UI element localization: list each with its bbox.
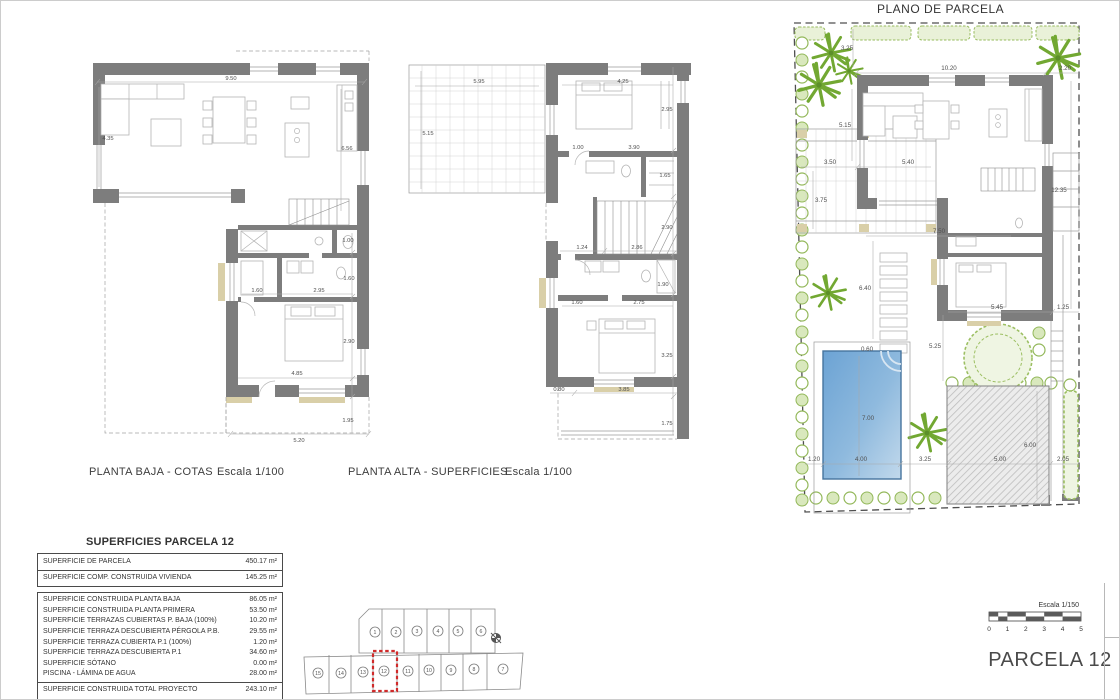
palm-tree xyxy=(812,275,846,309)
dim-parcela: 5.45 xyxy=(991,304,1004,311)
lot-number: 1 xyxy=(374,630,377,636)
dim-parcela: 3.50 xyxy=(824,159,837,166)
planta-baja-scale: Escala 1/100 xyxy=(217,466,284,478)
lot-number: 10 xyxy=(426,668,432,674)
lot-number: 13 xyxy=(360,670,366,676)
planta-baja-plan: 9.50 4.35 6.56 1.00 1.60 1.60 2.95 2.90 … xyxy=(93,51,371,444)
dim-alta: 1.90 xyxy=(657,282,668,288)
lot-number: 15 xyxy=(315,671,321,677)
north-marker-icon xyxy=(491,633,501,643)
stepping-stones xyxy=(880,253,907,353)
table-row: PISCINA - LÁMINA DE AGUA 28.00 m² xyxy=(38,669,282,682)
table-row: SUPERFICIE CONSTRUIDA PLANTA BAJA 86.05 … xyxy=(38,593,282,606)
row-value: 10.20 m² xyxy=(249,617,277,626)
dim-parcela: 5.25 xyxy=(929,343,942,350)
dim-alta: 1.24 xyxy=(576,245,588,251)
surfaces-table: SUPERFICIES PARCELA 12 SUPERFICIE DE PAR… xyxy=(37,536,283,700)
scalebar-tick: 3 xyxy=(1042,626,1046,633)
row-label: SUPERFICIE SÓTANO xyxy=(43,660,116,669)
dim-baja: 5.20 xyxy=(293,438,304,444)
planta-alta-caption: PLANTA ALTA - SUPERFICIES xyxy=(348,466,508,478)
row-label: SUPERFICIE CONSTRUIDA PLANTA PRIMERA xyxy=(43,607,195,616)
row-value: 145.25 m² xyxy=(245,574,277,583)
dim-parcela: 12.35 xyxy=(1051,187,1067,194)
planta-alta-plan: 5.95 5.15 4.25 2.95 1.00 3.90 1.65 2.90 … xyxy=(409,63,691,439)
dim-parcela: 3.25 xyxy=(919,456,932,463)
plano-parcela: 3.25 10.20 2.20 5.15 3.50 5.40 3.75 12.3… xyxy=(794,23,1080,513)
sheet-border-line xyxy=(1104,583,1105,700)
row-label: PISCINA - LÁMINA DE AGUA xyxy=(43,670,136,679)
dim-alta: 2.90 xyxy=(661,225,672,231)
dim-alta: 3.90 xyxy=(628,145,639,151)
drawing-sheet: 9.50 4.35 6.56 1.00 1.60 1.60 2.95 2.90 … xyxy=(0,0,1120,700)
row-value: 0.00 m² xyxy=(253,660,277,669)
scalebar-tick: 1 xyxy=(1006,626,1010,633)
row-label: SUPERFICIE COMP. CONSTRUIDA VIVIENDA xyxy=(43,574,191,583)
row-value: 34.60 m² xyxy=(249,649,277,658)
dim-parcela: 0.60 xyxy=(861,346,874,353)
keyplan: 1 2 3 4 5 6 15 14 13 12 11 10 9 8 7 xyxy=(297,593,537,700)
lot-number: 12 xyxy=(381,669,387,675)
row-value: 450.17 m² xyxy=(245,558,277,567)
scalebar: Escala 1/150 0 1 2 3 4 5 xyxy=(981,598,1117,646)
dim-baja: 1.60 xyxy=(251,288,262,294)
row-value: 243.10 m² xyxy=(245,686,277,695)
dim-baja: 1.95 xyxy=(342,418,353,424)
table-row: SUPERFICIE TERRAZA DESCUBIERTA PÉRGOLA P… xyxy=(38,627,282,638)
lot-number: 6 xyxy=(480,629,483,635)
dim-baja: 1.60 xyxy=(343,276,354,282)
dim-alta: 5.95 xyxy=(473,79,484,85)
dim-parcela: 6.00 xyxy=(1024,442,1037,449)
lot-number: 8 xyxy=(473,667,476,673)
dim-alta: 4.25 xyxy=(617,79,628,85)
dim-alta: 2.75 xyxy=(633,300,644,306)
row-label: SUPERFICIE TERRAZA CUBIERTA P.1 (100%) xyxy=(43,639,191,648)
dim-alta: 1.65 xyxy=(659,173,670,179)
dim-parcela: 7.50 xyxy=(933,228,946,235)
scalebar-tick: 0 xyxy=(987,626,991,633)
dim-parcela: 4.00 xyxy=(855,456,868,463)
dim-alta: 2.95 xyxy=(661,107,672,113)
dim-alta: 3.25 xyxy=(661,353,672,359)
row-label: SUPERFICIE TERRAZA DESCUBIERTA PÉRGOLA P… xyxy=(43,628,219,637)
table-row: SUPERFICIE CONSTRUIDA PLANTA PRIMERA 53.… xyxy=(38,606,282,617)
dim-parcela: 7.00 xyxy=(862,415,875,422)
dim-baja: 4.85 xyxy=(291,371,302,377)
row-label: SUPERFICIE CONSTRUIDA TOTAL PROYECTO xyxy=(43,686,197,695)
dim-parcela: 3.25 xyxy=(841,45,854,52)
planta-baja-caption: PLANTA BAJA - COTAS xyxy=(89,466,213,478)
row-label: SUPERFICIE DE PARCELA xyxy=(43,558,131,567)
table-row: SUPERFICIE DE PARCELA 450.17 m² xyxy=(38,554,282,570)
table-total-row: SUPERFICIE CONSTRUIDA TOTAL PROYECTO 243… xyxy=(38,682,282,699)
scalebar-label: Escala 1/150 xyxy=(1039,602,1080,609)
scalebar-tick: 2 xyxy=(1024,626,1028,633)
row-label: SUPERFICIE TERRAZA DESCUBIERTA P.1 xyxy=(43,649,181,658)
table-row: SUPERFICIE SÓTANO 0.00 m² xyxy=(38,659,282,670)
dim-baja: 9.50 xyxy=(225,76,236,82)
dim-parcela: 5.15 xyxy=(839,122,852,129)
lot-number: 4 xyxy=(437,629,440,635)
row-value: 29.55 m² xyxy=(249,628,277,637)
dim-alta: 0.80 xyxy=(553,387,564,393)
row-value: 53.50 m² xyxy=(249,607,277,616)
dim-parcela: 3.75 xyxy=(815,197,828,204)
dim-parcela: 6.40 xyxy=(859,285,872,292)
surfaces-table-title: SUPERFICIES PARCELA 12 xyxy=(37,536,283,548)
sheet-border-tick xyxy=(1104,637,1120,638)
lot-number: 9 xyxy=(450,668,453,674)
lot-number: 3 xyxy=(416,629,419,635)
furniture-alta xyxy=(575,81,675,373)
lot-number: 14 xyxy=(338,671,344,677)
dim-baja: 4.35 xyxy=(102,136,113,142)
dim-baja: 2.95 xyxy=(313,288,324,294)
dim-parcela: 5.00 xyxy=(994,456,1007,463)
lot-number: 5 xyxy=(457,629,460,635)
row-label: SUPERFICIE CONSTRUIDA PLANTA BAJA xyxy=(43,596,181,605)
dim-alta: 2.86 xyxy=(631,245,642,251)
dim-baja: 1.00 xyxy=(342,238,353,244)
dim-alta: 1.75 xyxy=(661,421,672,427)
lot-number: 2 xyxy=(395,630,398,636)
dim-parcela: 5.40 xyxy=(902,159,915,166)
dim-parcela: 2.20 xyxy=(1059,65,1072,72)
dim-alta: 1.60 xyxy=(571,300,582,306)
row-value: 86.05 m² xyxy=(249,596,277,605)
planta-alta-scale: Escala 1/100 xyxy=(505,466,572,478)
plano-parcela-title: PLANO DE PARCELA xyxy=(877,2,1004,16)
scalebar-tick: 4 xyxy=(1061,626,1065,633)
dim-parcela: 10.20 xyxy=(941,65,957,72)
plans-canvas: 9.50 4.35 6.56 1.00 1.60 1.60 2.95 2.90 … xyxy=(1,1,1120,536)
table-row: SUPERFICIE COMP. CONSTRUIDA VIVIENDA 145… xyxy=(38,570,282,587)
dim-alta: 5.15 xyxy=(422,131,433,137)
dim-parcela: 2.05 xyxy=(1057,456,1070,463)
dim-parcela: 1.25 xyxy=(1057,304,1070,311)
scalebar-tick: 5 xyxy=(1079,626,1083,633)
dim-alta: 1.00 xyxy=(572,145,583,151)
table-row: SUPERFICIE TERRAZAS CUBIERTAS P. BAJA (1… xyxy=(38,616,282,627)
hedge-row xyxy=(795,26,1079,40)
stairs-baja xyxy=(289,199,349,225)
table-row: SUPERFICIE TERRAZA DESCUBIERTA P.1 34.60… xyxy=(38,648,282,659)
dim-parcela: 1.20 xyxy=(808,456,821,463)
dim-baja: 6.56 xyxy=(341,146,352,152)
row-label: SUPERFICIE TERRAZAS CUBIERTAS P. BAJA (1… xyxy=(43,617,217,626)
pool xyxy=(814,342,910,513)
surfaces-box-2: SUPERFICIE CONSTRUIDA PLANTA BAJA 86.05 … xyxy=(37,592,283,699)
surfaces-box-1: SUPERFICIE DE PARCELA 450.17 m² SUPERFIC… xyxy=(37,553,283,587)
bush-column-left xyxy=(796,37,808,506)
dim-baja: 2.90 xyxy=(343,339,354,345)
table-row: SUPERFICIE TERRAZA CUBIERTA P.1 (100%) 1… xyxy=(38,638,282,649)
dim-alta: 3.85 xyxy=(618,387,629,393)
sheet-title: PARCELA 12 xyxy=(986,649,1114,672)
palm-tree xyxy=(909,414,946,451)
row-value: 28.00 m² xyxy=(249,670,277,679)
lot-number: 11 xyxy=(405,669,410,675)
row-value: 1.20 m² xyxy=(253,639,277,648)
lot-number: 7 xyxy=(502,667,505,673)
